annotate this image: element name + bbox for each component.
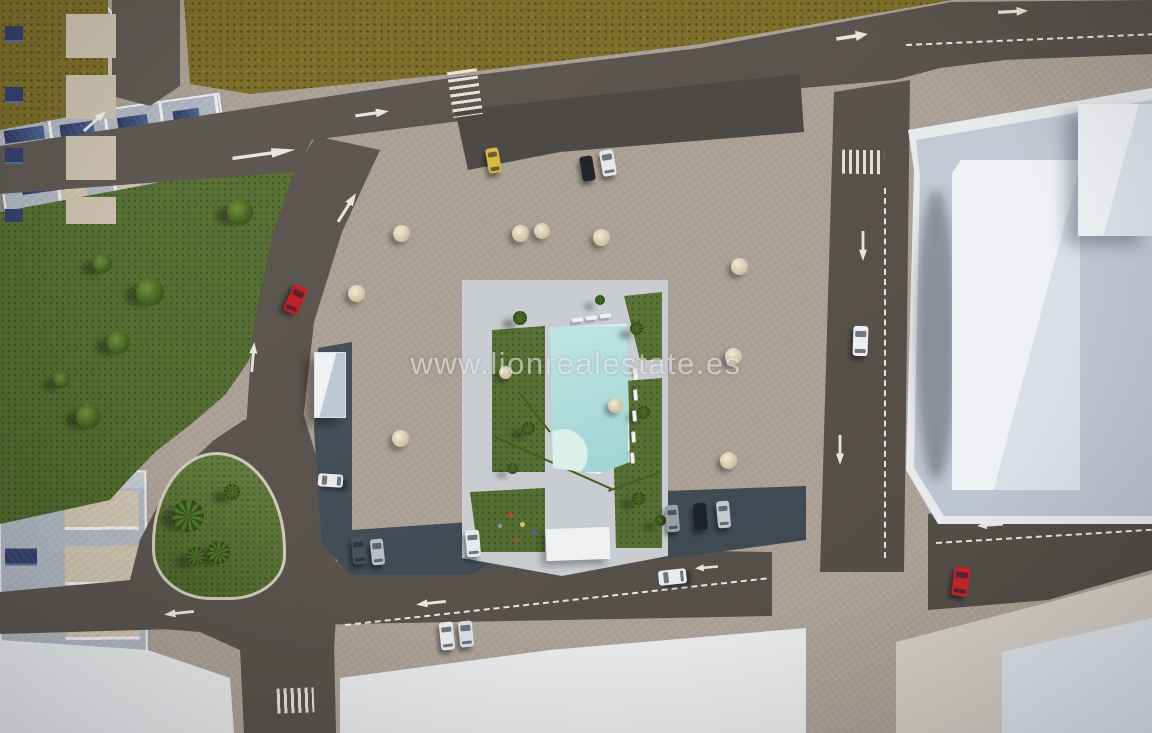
sun-lounger bbox=[630, 452, 635, 463]
crosswalk bbox=[447, 68, 483, 118]
car-yellow-parked-north bbox=[485, 147, 502, 174]
car-black-parked-southeast bbox=[693, 502, 708, 530]
car-white-parked-south bbox=[465, 529, 481, 557]
parasol bbox=[731, 258, 748, 275]
sun-lounger bbox=[632, 410, 637, 421]
palm-canopy bbox=[632, 492, 645, 505]
car-black-parked-north bbox=[579, 155, 596, 182]
road-arrow bbox=[333, 190, 360, 225]
palm-canopy bbox=[187, 547, 205, 565]
palm-canopy bbox=[630, 322, 643, 335]
sun-lounger bbox=[572, 317, 583, 322]
road-arrow bbox=[695, 562, 719, 573]
car-white-parked-front-1 bbox=[439, 621, 456, 650]
parasol bbox=[348, 285, 365, 302]
palm-canopy bbox=[522, 422, 535, 435]
car-white-parked-west-notch bbox=[318, 473, 344, 488]
palm-canopy bbox=[172, 500, 204, 532]
road-arrow bbox=[164, 606, 195, 619]
road-arrow bbox=[231, 144, 296, 165]
playground-item bbox=[520, 522, 525, 527]
tree-shadow bbox=[496, 471, 507, 479]
tree-shadow bbox=[584, 303, 594, 310]
sun-lounger bbox=[586, 315, 597, 320]
playground-item bbox=[498, 524, 502, 528]
lane-dash-line bbox=[936, 529, 1152, 544]
parasol bbox=[534, 223, 550, 239]
road-arrow bbox=[835, 435, 845, 465]
car-white-parked-north bbox=[599, 149, 617, 177]
palm-canopy bbox=[513, 311, 527, 325]
car-white-driving-west bbox=[658, 568, 687, 586]
crosswalk bbox=[277, 687, 315, 713]
parasol bbox=[608, 398, 623, 413]
road-arrow bbox=[81, 107, 110, 135]
lane-dash-line bbox=[906, 33, 1152, 46]
road-arrow bbox=[858, 231, 868, 261]
car-red-bottom-right bbox=[951, 566, 971, 597]
playground-item bbox=[508, 512, 513, 517]
road-arrow bbox=[416, 596, 447, 609]
car-silver-parked-southeast bbox=[716, 500, 731, 528]
car-dark-parked-southwest bbox=[351, 536, 368, 564]
palm-canopy bbox=[207, 541, 230, 564]
sun-lounger bbox=[600, 313, 611, 318]
palm-canopy bbox=[655, 515, 666, 526]
lane-dash-line bbox=[345, 577, 767, 626]
road-arrow bbox=[835, 28, 869, 46]
aerial-render-scene: www.lionrealestate.es bbox=[0, 0, 1152, 733]
parasol bbox=[720, 452, 737, 469]
tree-canopy bbox=[227, 199, 253, 225]
road-arrow bbox=[977, 519, 1004, 531]
road-arrow bbox=[998, 5, 1029, 18]
parasol bbox=[392, 430, 409, 447]
tree-canopy bbox=[93, 254, 112, 273]
car-white-parked-front-2 bbox=[458, 620, 475, 647]
car-red-branch-road bbox=[283, 283, 309, 316]
tree-canopy bbox=[76, 404, 101, 429]
playground-item bbox=[515, 538, 519, 542]
parasol bbox=[512, 225, 529, 242]
parasol bbox=[393, 225, 410, 242]
parasol bbox=[593, 229, 610, 246]
car-silver-parked-southwest bbox=[370, 538, 386, 565]
watermark: www.lionrealestate.es bbox=[0, 346, 1152, 382]
palm-canopy bbox=[595, 295, 605, 305]
tree-shadow bbox=[644, 523, 655, 531]
sun-lounger bbox=[633, 389, 638, 400]
playground-item bbox=[532, 530, 537, 535]
tree-canopy bbox=[136, 278, 164, 306]
palm-canopy bbox=[507, 463, 518, 474]
palm-canopy bbox=[224, 484, 240, 500]
crosswalk bbox=[842, 150, 884, 175]
palm-canopy bbox=[637, 406, 650, 419]
sun-lounger bbox=[631, 431, 636, 442]
car-gray-parked-southeast bbox=[665, 504, 680, 532]
road-arrow bbox=[354, 106, 389, 122]
